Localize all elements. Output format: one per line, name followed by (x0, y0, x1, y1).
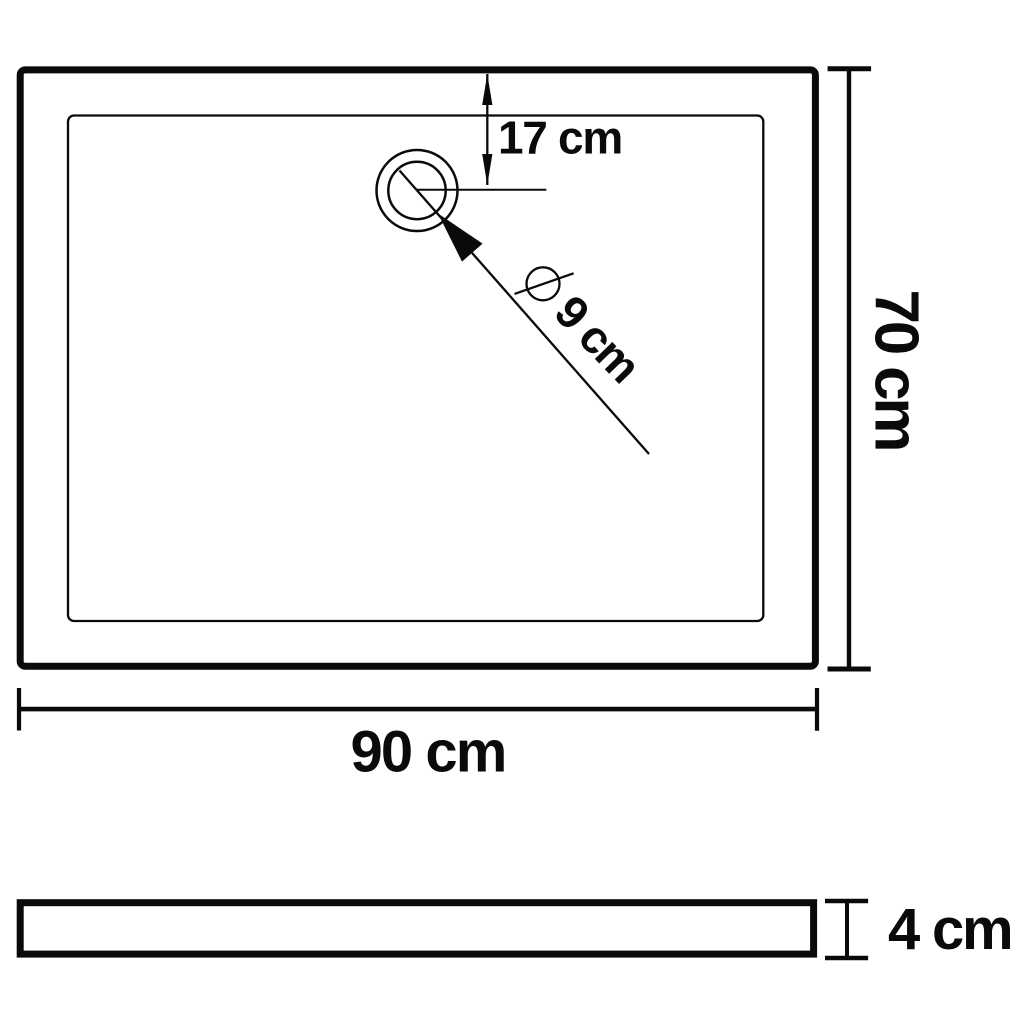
svg-text:70 cm: 70 cm (862, 290, 931, 450)
svg-text:90 cm: 90 cm (351, 720, 506, 785)
svg-text:17 cm: 17 cm (498, 111, 622, 163)
svg-text:4 cm: 4 cm (888, 897, 1011, 962)
